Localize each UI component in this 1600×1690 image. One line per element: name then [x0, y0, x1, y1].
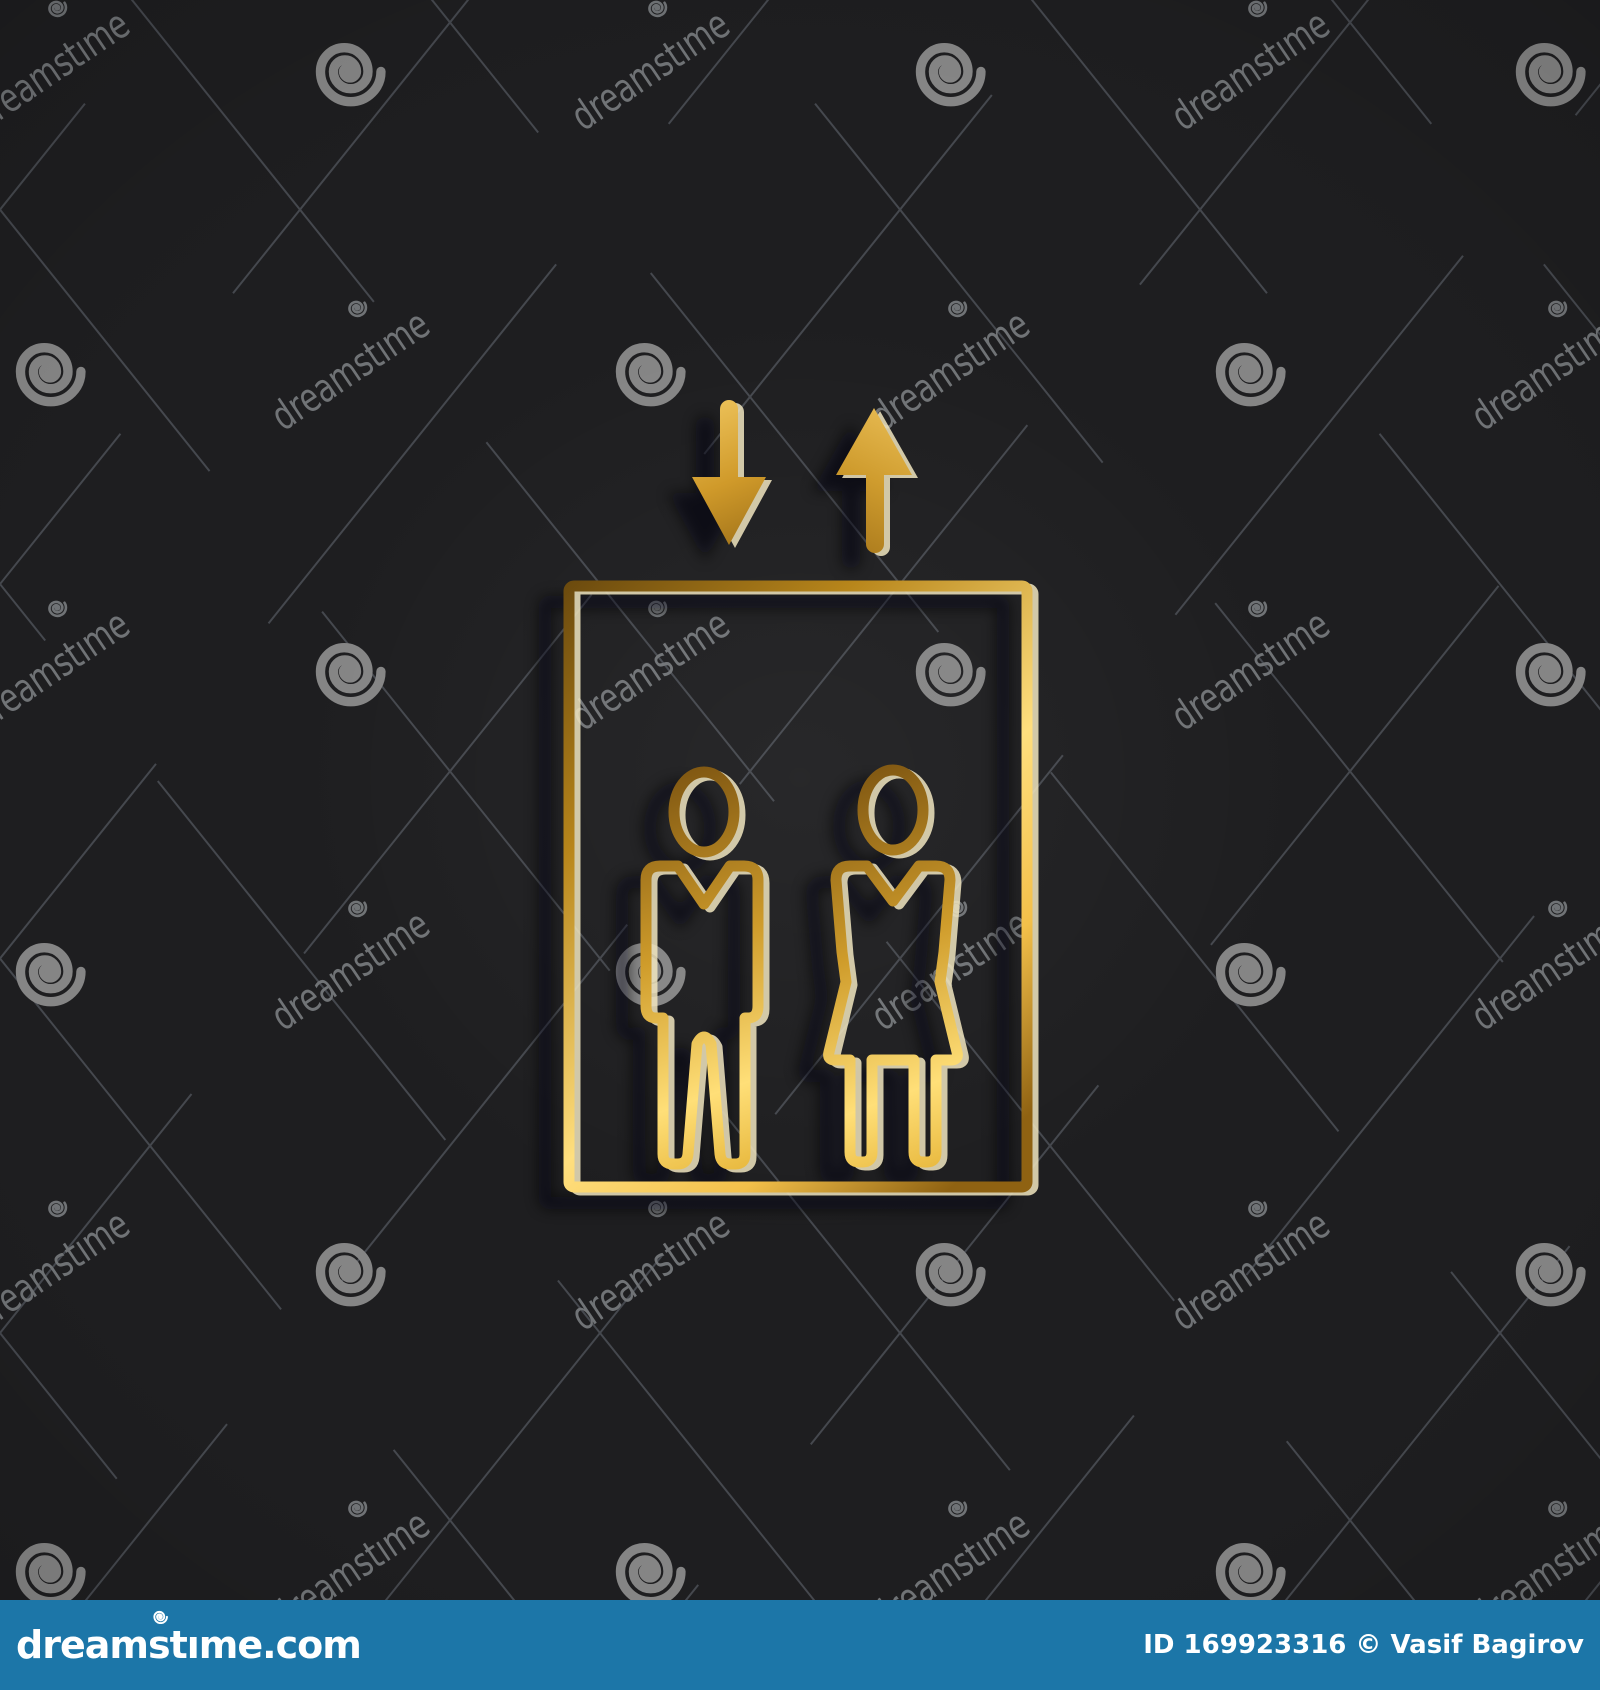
dreamstime-logo-text: dreamstıme.com [16, 1623, 361, 1667]
image-credit-text: ID 169923316 © Vasif Bagirov [1143, 1630, 1584, 1660]
elevator-gold-icon [0, 0, 1600, 1690]
dreamstime-logo-spiral-icon [153, 1609, 168, 1624]
footer-bar: dreamstıme.com ID 169923316 © Vasif Bagi… [0, 1600, 1600, 1690]
dreamstime-logo: dreamstıme.com [16, 1626, 361, 1664]
stock-image-canvas: dreamstımedreamstımedreamstımedreamstıme… [0, 0, 1600, 1690]
